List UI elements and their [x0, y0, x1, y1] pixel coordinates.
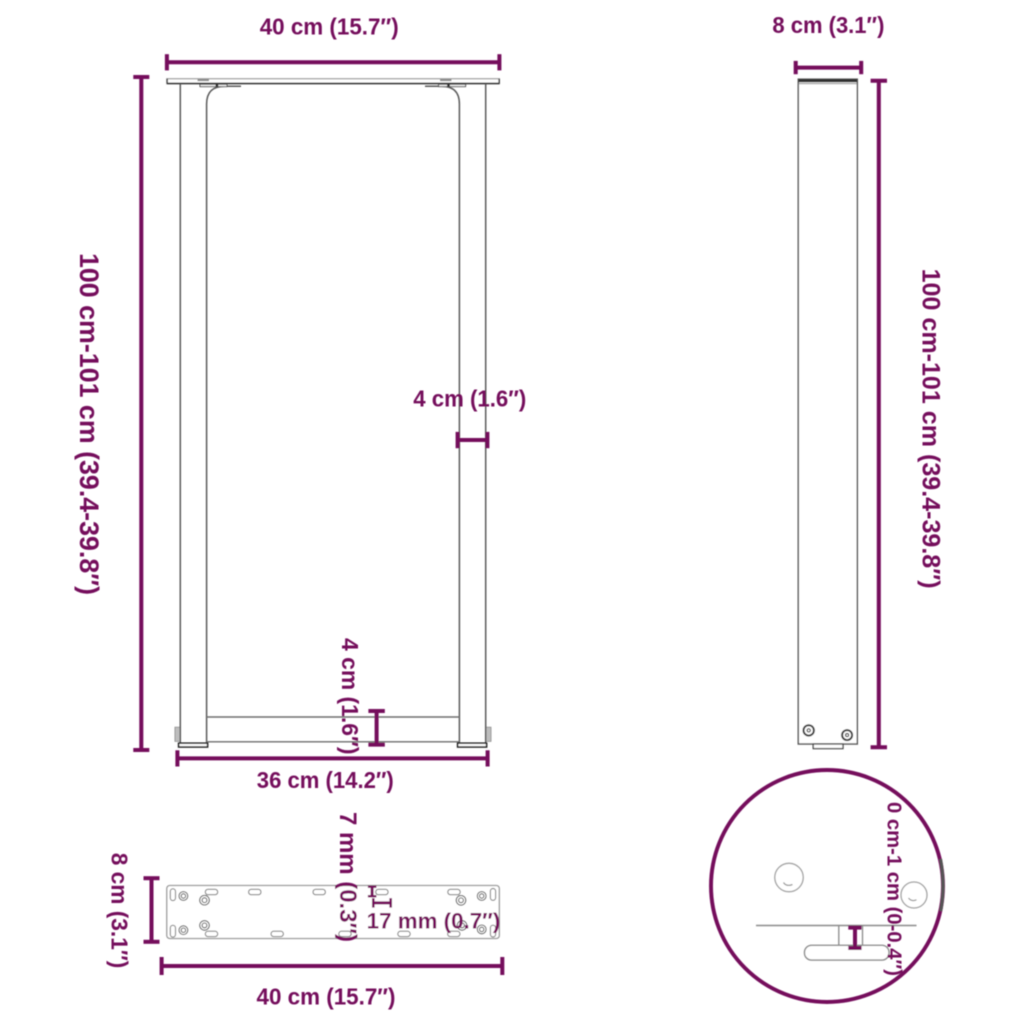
svg-text:4 cm (1.6″): 4 cm (1.6″)	[413, 386, 526, 412]
svg-text:40 cm (15.7″): 40 cm (15.7″)	[257, 984, 396, 1010]
svg-text:8 cm (3.1″): 8 cm (3.1″)	[772, 12, 884, 38]
svg-text:0 cm-1 cm (0-0.4″): 0 cm-1 cm (0-0.4″)	[882, 802, 904, 976]
svg-text:4 cm (1.6″): 4 cm (1.6″)	[337, 638, 363, 755]
svg-text:40 cm (15.7″): 40 cm (15.7″)	[260, 14, 399, 40]
svg-text:100 cm-101 cm (39.4-39.8″): 100 cm-101 cm (39.4-39.8″)	[74, 253, 104, 595]
svg-text:17 mm (0.7″): 17 mm (0.7″)	[367, 909, 501, 934]
svg-text:100 cm-101 cm (39.4-39.8″): 100 cm-101 cm (39.4-39.8″)	[917, 269, 945, 589]
svg-text:8 cm (3.1″): 8 cm (3.1″)	[107, 853, 133, 969]
svg-text:7 mm (0.3″): 7 mm (0.3″)	[334, 812, 361, 942]
svg-text:36 cm (14.2″): 36 cm (14.2″)	[257, 767, 394, 793]
